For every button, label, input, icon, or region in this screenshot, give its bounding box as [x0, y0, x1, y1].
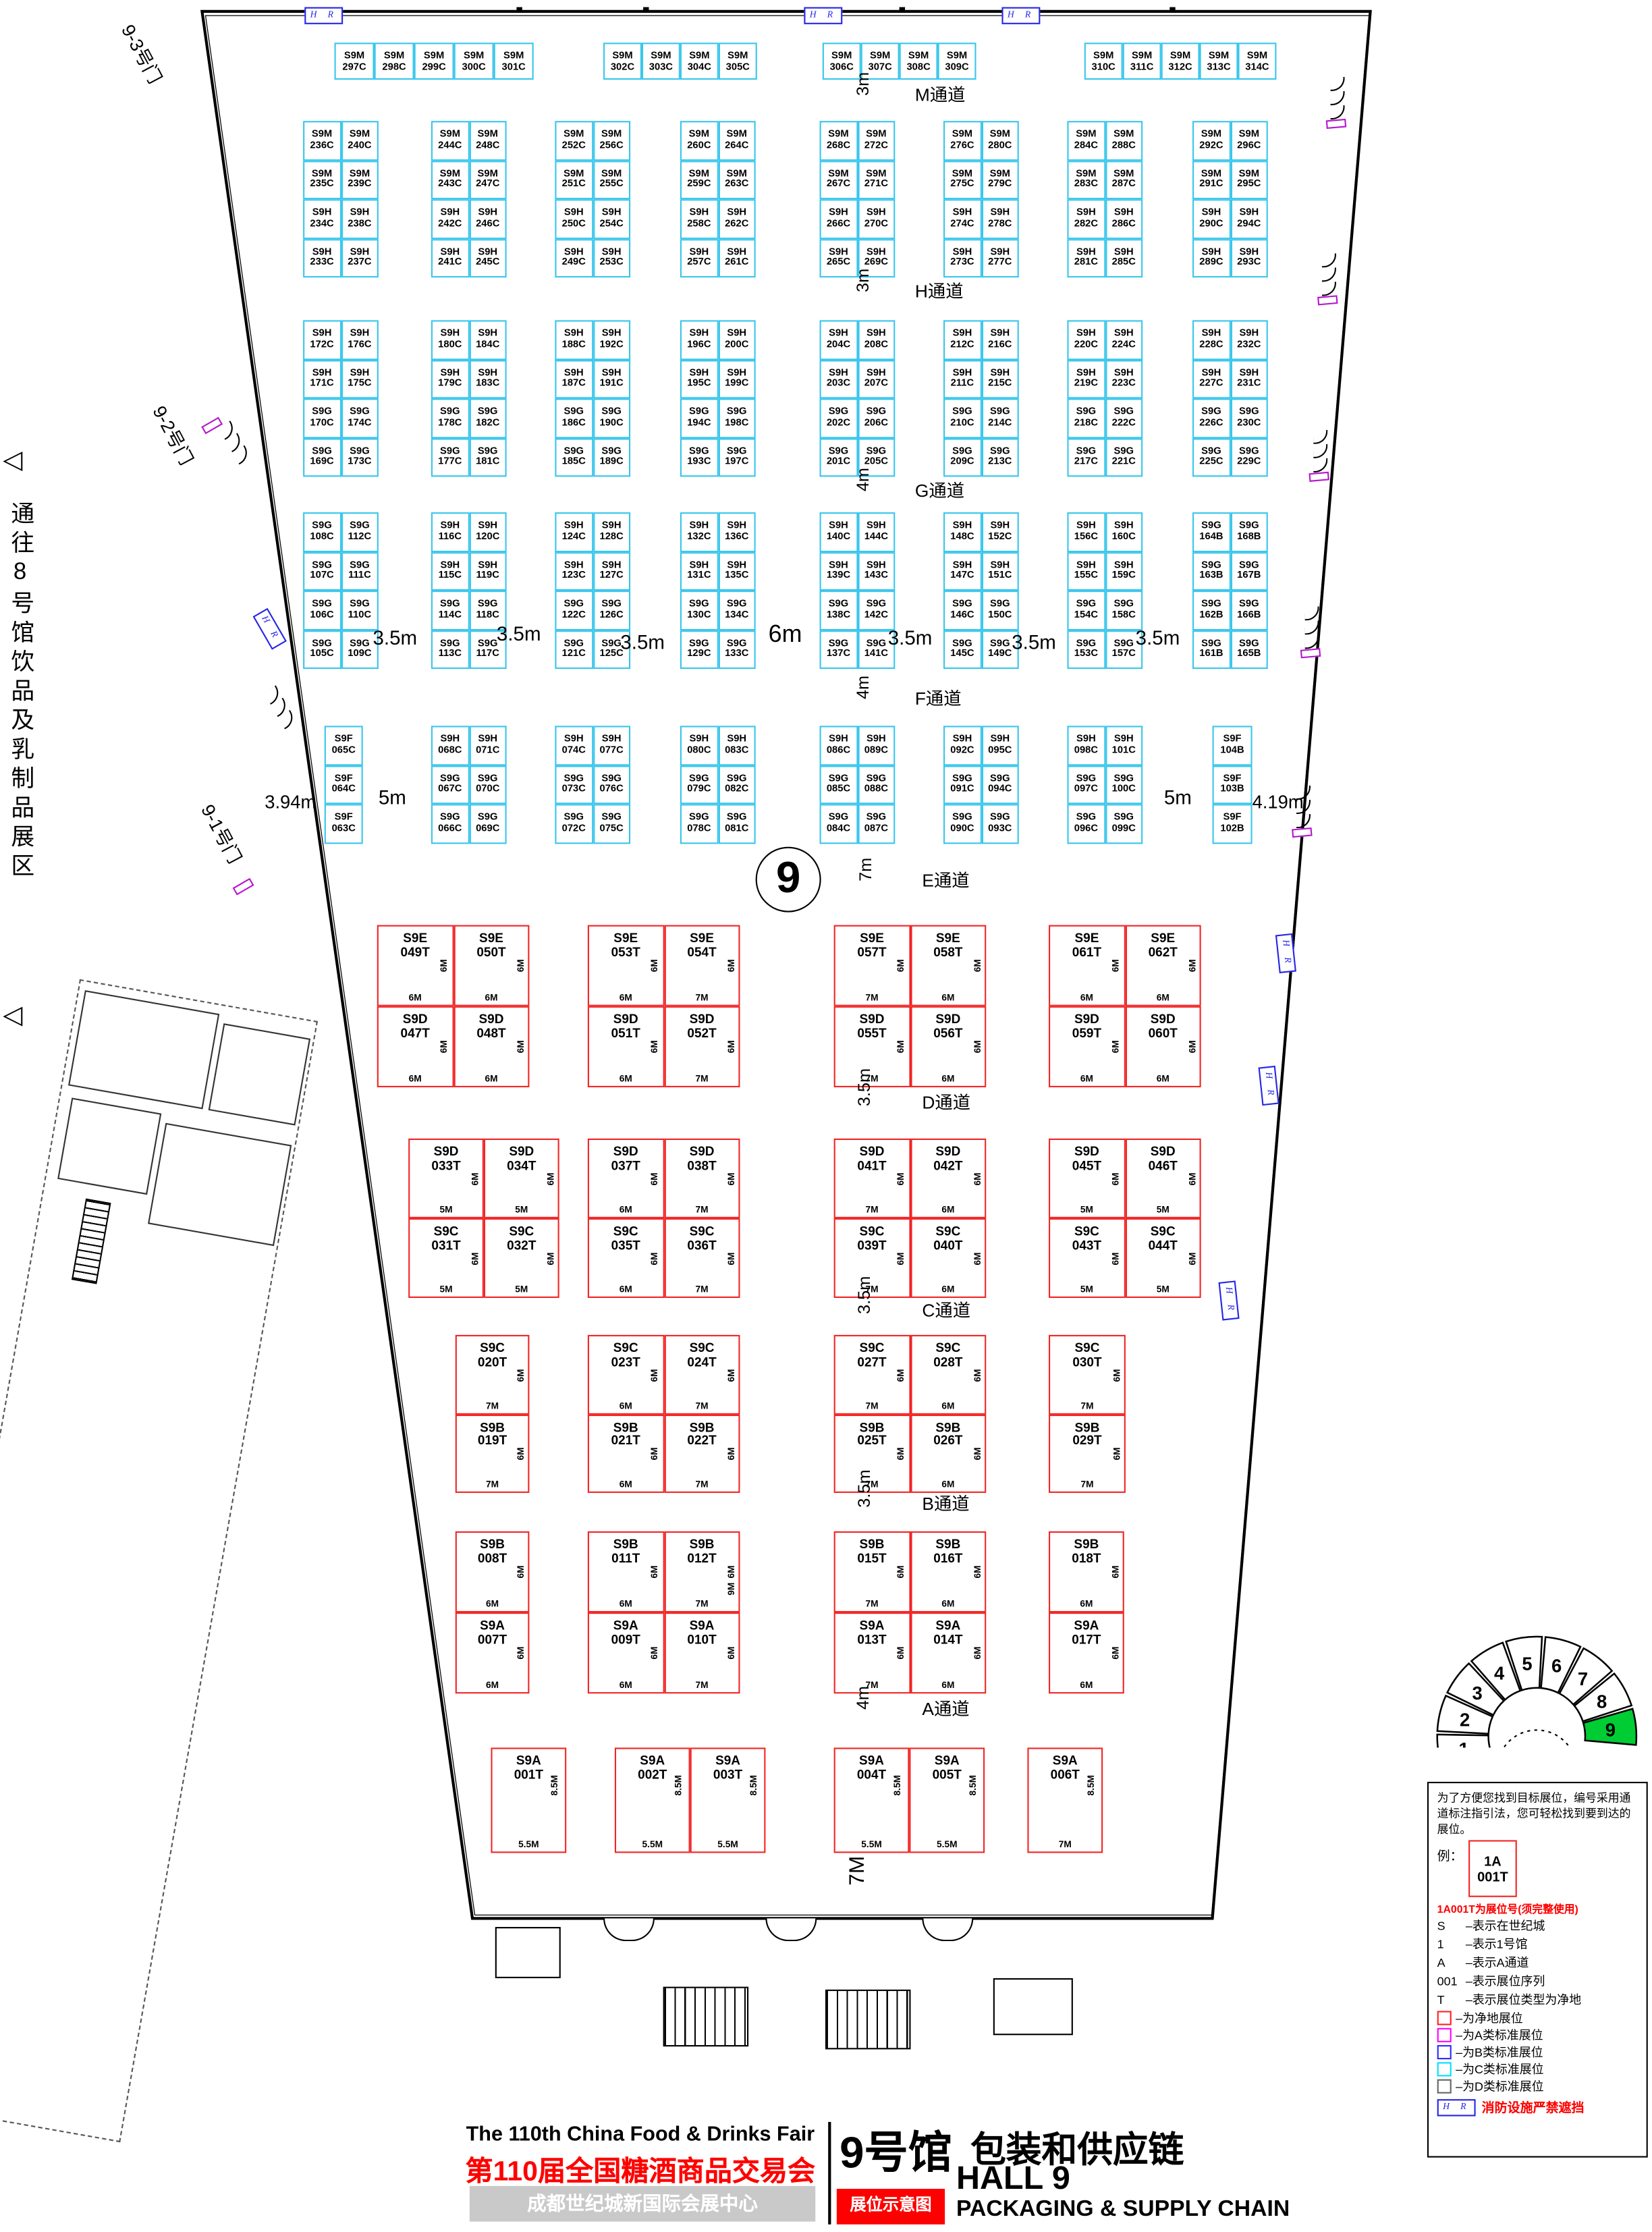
booth-prefix: S9H: [945, 734, 980, 745]
booth-number: 309C: [939, 62, 975, 73]
booth-prefix: S9M: [1069, 130, 1104, 140]
booth-prefix: S9A: [911, 1755, 984, 1768]
booth: S9E050T6M6M: [453, 925, 530, 1006]
booth-prefix: S9G: [1194, 638, 1229, 649]
booth-number: 279C: [983, 180, 1018, 190]
door-swing-icon: [1322, 253, 1336, 296]
booth-prefix: S9D: [835, 1145, 909, 1159]
booth-prefix: S9H: [556, 521, 591, 532]
booth-number: 020T: [457, 1356, 528, 1369]
hall-title-cn: 9号馆: [839, 2116, 952, 2180]
fire-note: 消防设施严禁遮挡: [1482, 2098, 1585, 2116]
booth: S9H200C: [718, 320, 756, 359]
booth-prefix: S9G: [719, 773, 754, 784]
booth-prefix: S9G: [719, 599, 754, 610]
booth: S9M268C: [820, 121, 858, 160]
booth: S9G189C: [593, 437, 630, 477]
booth-number: 170C: [304, 418, 339, 429]
booth: S9G138C: [820, 591, 858, 630]
booth-number: 177C: [433, 457, 468, 468]
venue-name: 成都世纪城新国际会展中心: [470, 2186, 815, 2222]
booth-number: 199C: [719, 379, 754, 390]
booth-prefix: S9G: [682, 638, 717, 649]
booth: S9M247C: [469, 160, 507, 199]
booth-prefix: S9A: [665, 1620, 739, 1633]
booth: S9G182C: [469, 398, 507, 437]
booth: S9G213C: [981, 437, 1019, 477]
booth-number: 029T: [1050, 1435, 1124, 1448]
booth: S9B022T6M7M: [664, 1414, 740, 1493]
booth: S9C028T6M6M: [910, 1335, 986, 1414]
booth-side-dim: 6M: [441, 1041, 451, 1054]
booth-prefix: S9G: [1194, 407, 1229, 418]
booth-prefix: S9G: [821, 599, 856, 610]
booth-bottom-dim: 6M: [1050, 1074, 1124, 1085]
booth-number: 245C: [470, 258, 505, 269]
booth-prefix: S9H: [945, 247, 980, 258]
booth-side-dim: 6M: [1113, 1368, 1123, 1381]
booth-number: 110C: [342, 610, 377, 621]
booth-number: 294C: [1232, 219, 1267, 229]
booth: S9H199C: [718, 359, 756, 398]
booth-prefix: S9G: [682, 446, 717, 457]
booth-side-dim: 6M: [516, 1447, 526, 1460]
booth-number: 189C: [594, 457, 629, 468]
booth-prefix: S9G: [342, 446, 377, 457]
booth-side-dim: 6M: [973, 1041, 983, 1054]
booth-bottom-dim: 5.5M: [835, 1840, 908, 1850]
booth-prefix: S9G: [821, 638, 856, 649]
booth: S9F102B: [1213, 804, 1252, 843]
booth-number: 188C: [556, 340, 591, 351]
aisle-width-dim: 4m: [853, 676, 873, 699]
booth-prefix: S9G: [719, 407, 754, 418]
booth-number: 192C: [594, 340, 629, 351]
booth: S9M305C: [719, 43, 757, 80]
booth-prefix: S9G: [821, 813, 856, 823]
booth-prefix: S9H: [859, 521, 894, 532]
booth: S9G107C: [303, 551, 341, 591]
booth: S9M296C: [1230, 121, 1268, 160]
booth: S9G166B: [1230, 591, 1268, 630]
booth-number: 050T: [455, 946, 528, 959]
booth: S9H143C: [857, 551, 895, 591]
booth-prefix: S9H: [470, 329, 505, 339]
booth-number: 162B: [1194, 610, 1229, 621]
booth-bottom-dim: 5M: [1126, 1205, 1200, 1216]
booth-number: 160C: [1106, 532, 1141, 543]
booth-side-dim: 6M: [973, 1566, 983, 1579]
booth-number: 174C: [342, 418, 377, 429]
booth-prefix: S9G: [594, 773, 629, 784]
booth: S9M267C: [820, 160, 858, 199]
minimap-hall-number: 7: [1578, 1668, 1588, 1689]
booth-bottom-dim: 6M: [1126, 1074, 1200, 1085]
booth-number: 204C: [821, 340, 856, 351]
booth: S9G110C: [341, 591, 379, 630]
booth-prefix: S9G: [859, 599, 894, 610]
booth: S9G111C: [341, 551, 379, 591]
booth: S9G201C: [820, 437, 858, 477]
booth-number: 311C: [1124, 62, 1160, 73]
booth-number: 290C: [1194, 219, 1229, 229]
booth-number: 265C: [821, 258, 856, 269]
booth-number: 038T: [665, 1160, 739, 1173]
booth: S9G081C: [718, 804, 756, 843]
booth-prefix: S9H: [821, 521, 856, 532]
booth-number: 105C: [304, 649, 339, 660]
booth-number: 094C: [983, 784, 1018, 795]
booth-prefix: S9H: [1194, 208, 1229, 219]
booth-number: 023T: [589, 1356, 663, 1369]
booth-bottom-dim: 6M: [1126, 993, 1200, 1004]
booth-number: 085C: [821, 784, 856, 795]
booth: S9G181C: [469, 437, 507, 477]
booth: S9M299C: [414, 43, 454, 80]
booth-number: 028T: [912, 1356, 985, 1369]
booth-number: 201C: [821, 457, 856, 468]
booth-number: 012T: [665, 1552, 739, 1566]
booth-bottom-dim: 5M: [410, 1205, 483, 1216]
booth-side-dim: 6M: [547, 1252, 557, 1265]
booth-prefix: S9H: [821, 247, 856, 258]
booth: S9H123C: [555, 551, 593, 591]
booth-number: 017T: [1050, 1633, 1123, 1647]
booth-number: 036T: [665, 1239, 739, 1253]
booth-prefix: S9H: [556, 247, 591, 258]
booth-number: 052T: [665, 1027, 739, 1041]
booth: S9H273C: [943, 238, 981, 277]
booth-prefix: S9G: [470, 407, 505, 418]
booth-prefix: S9M: [719, 130, 754, 140]
booth: S9G146C: [943, 591, 981, 630]
booth-prefix: S9C: [485, 1226, 558, 1239]
booth: S9H131C: [680, 551, 718, 591]
booth-prefix: S9M: [1194, 169, 1229, 180]
booth-prefix: S9H: [945, 329, 980, 339]
booth-prefix: S9H: [1232, 208, 1267, 219]
booth: S9G209C: [943, 437, 981, 477]
booth-number: 194C: [682, 418, 717, 429]
booth-prefix: S9H: [1069, 734, 1104, 745]
booth-side-dim: 6M: [973, 1368, 983, 1381]
booth-bottom-dim: 6M: [912, 1205, 985, 1216]
booth: S9H135C: [718, 551, 756, 591]
booth-number: 248C: [470, 140, 505, 151]
booth-bottom-dim: 7M: [1050, 1480, 1124, 1490]
booth-prefix: S9H: [682, 247, 717, 258]
booth-number: 271C: [859, 180, 894, 190]
booth: S9H179C: [431, 359, 469, 398]
booth-bottom-dim: 7M: [665, 993, 739, 1004]
booth: S9D060T6M6M: [1125, 1006, 1201, 1087]
booth-number: 275C: [945, 180, 980, 190]
aisle-width-dim: 7m: [856, 858, 876, 881]
booth-prefix: S9H: [983, 329, 1018, 339]
booth: S9H136C: [718, 512, 756, 551]
booth-prefix: S9C: [665, 1226, 739, 1239]
booth-number: 067C: [433, 784, 468, 795]
booth-number: 014T: [912, 1633, 985, 1647]
booth-prefix: S9B: [589, 1538, 663, 1552]
legend-code-row: 1–表示1号馆: [1437, 1936, 1638, 1954]
booth-prefix: S9G: [556, 599, 591, 610]
booth: S9H139C: [820, 551, 858, 591]
booth-prefix: S9H: [859, 734, 894, 745]
booth: S9C030T6M7M: [1049, 1335, 1126, 1414]
booth-number: 008T: [457, 1552, 528, 1566]
aisle-label: C通道: [922, 1295, 970, 1322]
aisle-label: A通道: [922, 1693, 969, 1720]
booth: S9G210C: [943, 398, 981, 437]
booth: S9H151C: [981, 551, 1019, 591]
booth-bottom-dim: 6M: [1050, 993, 1124, 1004]
booth-prefix: S9H: [719, 208, 754, 219]
booth-prefix: S9G: [859, 773, 894, 784]
booth-number: 096C: [1069, 823, 1104, 834]
booth-bottom-dim: 7M: [665, 1480, 739, 1490]
booth-side-dim: 6M: [973, 1172, 983, 1185]
booth-prefix: S9M: [821, 130, 856, 140]
booth: S9G169C: [303, 437, 341, 477]
booth: S9G158C: [1105, 591, 1142, 630]
booth-number: 032T: [485, 1239, 558, 1253]
booth-number: 292C: [1194, 140, 1229, 151]
booth: S9H127C: [593, 551, 630, 591]
aisle-width-dim: 4m: [853, 468, 873, 491]
booth: S9M279C: [981, 160, 1019, 199]
booth-number: 145C: [945, 649, 980, 660]
booth: S9H220C: [1067, 320, 1105, 359]
booth-number: 089C: [859, 745, 894, 756]
booth-prefix: S9H: [594, 329, 629, 339]
booth-prefix: S9G: [304, 638, 339, 649]
booth-prefix: S9C: [1050, 1226, 1124, 1239]
booth: S9G079C: [680, 765, 718, 804]
minimap-hall-number: 2: [1460, 1709, 1470, 1730]
legend-box: 为了方便您找到目标展位，编号采用通道标注指引法，您可轻松找到要到达的展位。 例：…: [1427, 1782, 1648, 2158]
booth-bottom-dim: 6M: [379, 993, 452, 1004]
booth: S9G076C: [593, 765, 630, 804]
stairs: [663, 1987, 749, 2047]
booth: S9G073C: [555, 765, 593, 804]
booth: S9M240C: [341, 121, 379, 160]
booth-prefix: S9G: [556, 638, 591, 649]
booth-number: 148C: [945, 532, 980, 543]
booth-prefix: S9M: [336, 51, 373, 62]
booth-number: 163B: [1194, 571, 1229, 582]
booth-prefix: S9E: [912, 932, 985, 946]
booth-prefix: S9G: [821, 773, 856, 784]
booth: S9H086C: [820, 726, 858, 765]
booth-side-dim: 6M: [651, 960, 661, 973]
booth: S9H172C: [303, 320, 341, 359]
booth: S9M264C: [718, 121, 756, 160]
booth: S9H140C: [820, 512, 858, 551]
booth: S9M302C: [603, 43, 642, 80]
booth-number: 080C: [682, 745, 717, 756]
booth: S9D045T6M5M: [1049, 1139, 1125, 1218]
booth-number: 313C: [1201, 62, 1237, 73]
booth: S9G174C: [341, 398, 379, 437]
booth-number: 228C: [1194, 340, 1229, 351]
booth-prefix: S9M: [470, 169, 505, 180]
booth-number: 097C: [1069, 784, 1104, 795]
booth-side-dim: 6M: [727, 960, 737, 973]
booth: S9B026T6M6M: [910, 1414, 986, 1493]
booth-prefix: S9E: [1050, 932, 1124, 946]
booth-prefix: S9C: [410, 1226, 483, 1239]
booth: S9D056T6M6M: [910, 1006, 986, 1087]
booth: S9G167B: [1230, 551, 1268, 591]
booth: S9D059T6M6M: [1049, 1006, 1125, 1087]
booth-prefix: S9H: [983, 247, 1018, 258]
booth-prefix: S9H: [1069, 560, 1104, 571]
booth-number: 136C: [719, 532, 754, 543]
booth: S9M291C: [1192, 160, 1230, 199]
booth-prefix: S9D: [1126, 1013, 1200, 1027]
booth-number: 011T: [589, 1552, 663, 1566]
booth: S9G099C: [1105, 804, 1142, 843]
booth-number: 046T: [1126, 1160, 1200, 1173]
example-booth-line2: 001T: [1470, 1870, 1515, 1886]
fire-marker-icon: [1317, 295, 1338, 305]
booth: S9C036T6M7M: [664, 1218, 740, 1298]
booth-number: 025T: [835, 1435, 909, 1448]
booth: S9H148C: [943, 512, 981, 551]
stair-hatch: [72, 1199, 111, 1284]
legend-code-row: S–表示在世纪城: [1437, 1917, 1638, 1935]
booth-prefix: S9G: [983, 773, 1018, 784]
dimension-label: 5m: [379, 786, 406, 809]
booth-number: 171C: [304, 379, 339, 390]
booth-prefix: S9D: [455, 1013, 528, 1027]
booth: S9G161B: [1192, 630, 1230, 669]
booth-prefix: S9G: [1232, 560, 1267, 571]
booth-prefix: S9G: [433, 407, 468, 418]
legend-code-row: T–表示展位类型为净地: [1437, 1991, 1638, 2009]
booth-prefix: S9A: [457, 1620, 528, 1633]
booth-side-dim: 6M: [651, 1447, 661, 1460]
booth-side-dim: 6M: [897, 1368, 907, 1381]
booth-prefix: S9A: [912, 1620, 985, 1633]
booth-bottom-dim: 5.5M: [911, 1840, 984, 1850]
booth-prefix: S9G: [1069, 773, 1104, 784]
legend-color-row: –为C类标准展位: [1437, 2061, 1638, 2077]
booth: S9G186C: [555, 398, 593, 437]
booth-number: 115C: [433, 571, 468, 582]
booth-number: 267C: [821, 180, 856, 190]
booth: S9H180C: [431, 320, 469, 359]
booth-prefix: S9M: [1194, 130, 1229, 140]
booth: S9G066C: [431, 804, 469, 843]
booth: S9B008T6M6M: [456, 1531, 530, 1612]
booth: S9C032T6M5M: [484, 1218, 559, 1298]
booth-prefix: S9D: [589, 1145, 663, 1159]
booth: S9H277C: [981, 238, 1019, 277]
booth-prefix: S9D: [912, 1145, 985, 1159]
booth: S9H278C: [981, 199, 1019, 238]
booth-number: 138C: [821, 610, 856, 621]
booth-number: 013T: [835, 1633, 909, 1647]
booth-number: 211C: [945, 379, 980, 390]
booth: S9C027T6M7M: [834, 1335, 910, 1414]
booth-number: 237C: [342, 258, 377, 269]
booth-bottom-dim: 5M: [410, 1285, 483, 1295]
booth-bottom-dim: 6M: [912, 1401, 985, 1411]
booth-number: 241C: [433, 258, 468, 269]
booth: S9G197C: [718, 437, 756, 477]
booth: S9M244C: [431, 121, 469, 160]
booth-prefix: S9G: [1106, 599, 1141, 610]
booth-number: 291C: [1194, 180, 1229, 190]
hall-number-badge: 9: [756, 847, 821, 913]
booth-number: 227C: [1194, 379, 1229, 390]
booth: S9H237C: [341, 238, 379, 277]
booth-number: 232C: [1232, 340, 1267, 351]
booth-prefix: S9M: [901, 51, 937, 62]
booth-number: 106C: [304, 610, 339, 621]
booth: S9D037T6M6M: [588, 1139, 664, 1218]
booth-prefix: S9G: [470, 446, 505, 457]
booth: S9H120C: [469, 512, 507, 551]
booth-number: 064C: [326, 784, 362, 795]
booth-number: 207C: [859, 379, 894, 390]
booth-prefix: S9F: [1214, 813, 1251, 823]
booth-prefix: S9M: [682, 51, 717, 62]
legend-color-swatch: [1437, 2045, 1452, 2059]
booth-number: 230C: [1232, 418, 1267, 429]
booth: S9G070C: [469, 765, 507, 804]
booth-number: 022T: [665, 1435, 739, 1448]
booth-number: 143C: [859, 571, 894, 582]
booth-prefix: S9G: [1106, 407, 1141, 418]
booth-prefix: S9H: [682, 521, 717, 532]
booth-number: 061T: [1050, 946, 1124, 959]
booth-number: 095C: [983, 745, 1018, 756]
booth-number: 114C: [433, 610, 468, 621]
booth-prefix: S9M: [304, 130, 339, 140]
booth-number: 253C: [594, 258, 629, 269]
booth-prefix: S9G: [342, 521, 377, 532]
booth: S9G085C: [820, 765, 858, 804]
booth: S9F065C: [325, 726, 363, 765]
booth-prefix: S9M: [719, 169, 754, 180]
booth-number: 044T: [1126, 1239, 1200, 1253]
booth-prefix: S9C: [912, 1226, 985, 1239]
booth: S9E062T6M6M: [1125, 925, 1201, 1006]
booth-prefix: S9G: [682, 773, 717, 784]
booth-number: 202C: [821, 418, 856, 429]
booth-prefix: S9M: [1124, 51, 1160, 62]
booth: S9C035T6M6M: [588, 1218, 664, 1298]
booth-number: 244C: [433, 140, 468, 151]
booth-number: 041T: [835, 1160, 909, 1173]
booth-number: 224C: [1106, 340, 1141, 351]
booth: S9M283C: [1067, 160, 1105, 199]
booth-prefix: S9M: [342, 130, 377, 140]
hydrant-icon: H R: [1437, 2098, 1477, 2115]
booth: S9H224C: [1105, 320, 1142, 359]
booth-number: 087C: [859, 823, 894, 834]
booth: S9B012T6M7M9M: [664, 1531, 740, 1612]
booth-number: 091C: [945, 784, 980, 795]
booth-number: 254C: [594, 219, 629, 229]
booth: S9G093C: [981, 804, 1019, 843]
minimap-hall-number: 5: [1522, 1653, 1532, 1674]
booth: S9G217C: [1067, 437, 1105, 477]
booth-number: 178C: [433, 418, 468, 429]
